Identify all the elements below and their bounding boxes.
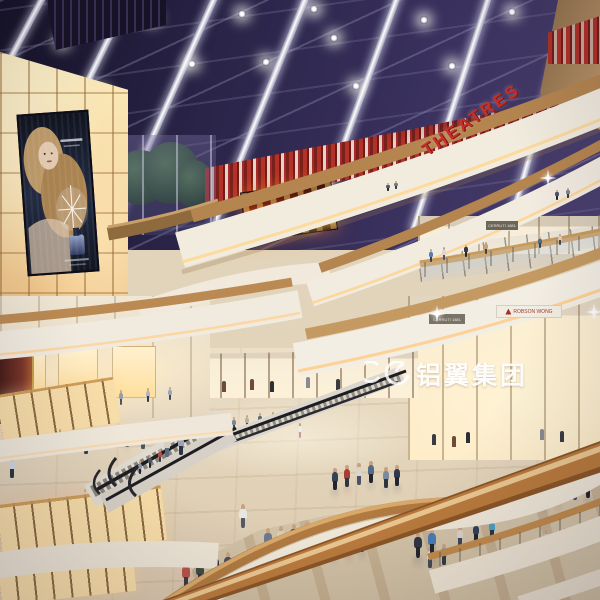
foreground-handrail [0, 0, 600, 600]
watermark-text: 铝翼集团 [416, 356, 528, 392]
mall-atrium-scene: THEATRES CERRUTI 1881 CERRUTI 1881 ROBSO… [0, 0, 600, 600]
lens-flare-sparkle [585, 303, 600, 321]
lens-flare-sparkle [428, 305, 446, 323]
watermark-swirl-icon [384, 361, 410, 387]
watermark: 铝翼集团 [364, 356, 528, 392]
lens-flare-sparkle [539, 169, 557, 187]
watermark-partial-swirl-icon [364, 361, 380, 387]
